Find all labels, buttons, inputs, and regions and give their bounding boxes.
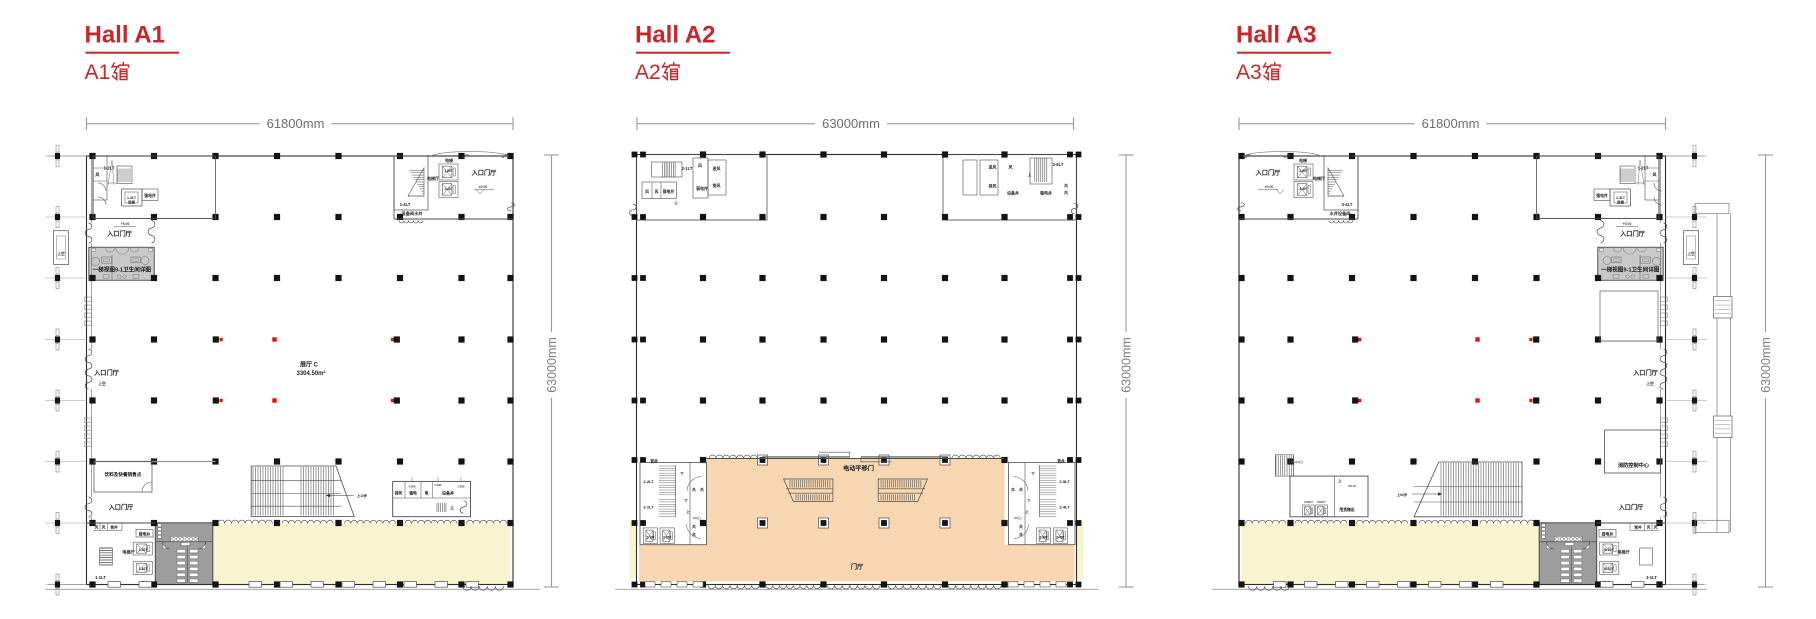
svg-text:货梯: 货梯 (127, 200, 135, 205)
svg-text:消防控制中心: 消防控制中心 (1618, 461, 1650, 469)
svg-text:3304.50m²: 3304.50m² (296, 370, 325, 377)
svg-text:设备井: 设备井 (442, 490, 454, 496)
svg-text:风: 风 (1064, 190, 1068, 195)
svg-text:上: 上 (674, 200, 678, 205)
svg-text:进风: 进风 (713, 165, 721, 171)
svg-text:上: 上 (450, 505, 454, 510)
svg-text:CDW: CDW (434, 483, 441, 487)
svg-text:X020Y: X020Y (1317, 500, 1326, 504)
svg-text:3-40T: 3-40T (1299, 187, 1307, 191)
svg-text:2-1LT: 2-1LT (643, 505, 654, 510)
svg-text:Hall A2: Hall A2 (635, 22, 715, 49)
svg-text:+5.00: +5.00 (1623, 222, 1632, 226)
svg-text:电梯: 电梯 (445, 157, 453, 163)
svg-text:2-1LT: 2-1LT (682, 166, 693, 171)
svg-text:1-10T: 1-10T (139, 567, 149, 571)
svg-text:B-10T: B-10T (1604, 567, 1614, 571)
svg-text:FM(乙): FM(乙) (1014, 516, 1022, 520)
svg-text:63000mm: 63000mm (822, 116, 880, 131)
svg-text:弱电井: 弱电井 (663, 189, 675, 194)
svg-text:货梯: 货梯 (1616, 200, 1625, 205)
svg-text:风: 风 (1064, 183, 1068, 188)
svg-text:展厅 C: 展厅 C (300, 361, 319, 369)
svg-text:风: 风 (102, 525, 106, 530)
svg-text:风: 风 (1647, 525, 1651, 530)
svg-text:上60步: 上60步 (1397, 492, 1408, 497)
svg-text:±0.00: ±0.00 (1265, 185, 1274, 189)
svg-text:1-3LT: 1-3LT (127, 196, 137, 200)
svg-text:管井: 管井 (1634, 525, 1642, 530)
svg-text:强电井: 强电井 (144, 193, 156, 198)
svg-text:电梯厅: 电梯厅 (1313, 175, 1325, 181)
svg-text:2-2LT: 2-2LT (643, 479, 654, 484)
svg-text:饮料及快餐销售点: 饮料及快餐销售点 (104, 471, 142, 478)
svg-text:上空: 上空 (98, 381, 106, 386)
svg-text:入口门厅: 入口门厅 (106, 230, 133, 238)
svg-text:±0.00: ±0.00 (479, 185, 488, 189)
svg-text:上空: 上空 (1687, 251, 1695, 256)
svg-text:上空: 上空 (1646, 381, 1654, 386)
svg-text:3-4LT: 3-4LT (1342, 202, 1353, 207)
svg-text:风: 风 (95, 525, 99, 530)
svg-text:61800mm: 61800mm (267, 116, 325, 131)
svg-text:风: 风 (1654, 525, 1658, 530)
svg-text:强电: 强电 (409, 491, 417, 496)
svg-text:电: 电 (425, 491, 429, 496)
svg-text:上15步: 上15步 (357, 493, 368, 498)
svg-text:A2: A2 (635, 61, 661, 84)
svg-text:A3: A3 (1236, 61, 1262, 84)
svg-text:1-50T: 1-50T (444, 169, 452, 173)
svg-text:入口门厅: 入口门厅 (1255, 169, 1282, 177)
svg-text:排风: 排风 (989, 183, 997, 189)
svg-text:强电井: 强电井 (1040, 190, 1052, 196)
svg-text:排风: 排风 (395, 491, 403, 496)
svg-text:63000mm: 63000mm (1119, 337, 1133, 393)
svg-text:入口门厅: 入口门厅 (93, 369, 120, 377)
svg-text:2-30T: 2-30T (1039, 536, 1047, 540)
svg-text:入口门厅: 入口门厅 (108, 504, 135, 512)
svg-text:风: 风 (645, 189, 649, 194)
svg-text:门厅: 门厅 (851, 563, 864, 571)
svg-text:1-20T: 1-20T (139, 548, 149, 552)
svg-text:GDM: GDM (409, 485, 417, 489)
svg-text:电动平移门: 电动平移门 (843, 465, 874, 473)
svg-text:63000mm: 63000mm (545, 337, 559, 393)
svg-text:管井: 管井 (1057, 459, 1065, 464)
svg-text:3-1LT: 3-1LT (1646, 575, 1657, 580)
svg-text:入口门厅: 入口门厅 (1619, 230, 1646, 238)
svg-text:1-1LT: 1-1LT (95, 575, 106, 580)
svg-text:风: 风 (698, 162, 702, 168)
svg-text:一梯视图9-1卫生间详图: 一梯视图9-1卫生间详图 (93, 266, 152, 274)
svg-text:弱电井: 弱电井 (1602, 531, 1614, 536)
svg-text:设备井: 设备井 (1007, 190, 1019, 196)
svg-text:GDM: GDM (458, 485, 466, 489)
svg-text:1-2LT: 1-2LT (104, 166, 115, 171)
svg-text:入口门厅: 入口门厅 (1618, 504, 1645, 512)
svg-text:+5.00: +5.00 (121, 222, 130, 226)
svg-text:设备间水井: 设备间水井 (402, 210, 424, 217)
svg-text:管井: 管井 (650, 459, 658, 464)
svg-text:弱电井: 弱电井 (696, 186, 708, 191)
svg-text:63000mm: 63000mm (1759, 337, 1773, 393)
svg-text:2-10T: 2-10T (646, 536, 654, 540)
svg-text:A1: A1 (85, 61, 111, 84)
svg-text:电梯厅: 电梯厅 (1617, 549, 1630, 556)
svg-text:HW(FM乙): HW(FM乙) (1291, 460, 1304, 464)
svg-text:1-40T: 1-40T (444, 187, 452, 191)
svg-text:弱电井: 弱电井 (139, 531, 151, 536)
svg-text:B-20T: B-20T (1604, 548, 1614, 552)
svg-text:进风: 进风 (989, 164, 997, 170)
svg-text:1-2LT: 1-2LT (1638, 166, 1649, 171)
svg-text:1-4LT: 1-4LT (400, 202, 411, 207)
svg-text:风: 风 (1009, 164, 1013, 170)
svg-text:2-20T: 2-20T (663, 536, 671, 540)
svg-text:电梯: 电梯 (1299, 157, 1307, 163)
svg-text:强电井: 强电井 (1596, 193, 1608, 198)
svg-text:甩货梯出: 甩货梯出 (1338, 507, 1354, 512)
svg-text:上: 上 (1028, 172, 1032, 177)
svg-text:入口门厅: 入口门厅 (1632, 369, 1659, 377)
svg-text:水井设备间: 水井设备间 (1330, 210, 1351, 217)
svg-text:Hall A3: Hall A3 (1236, 22, 1316, 49)
svg-text:61800mm: 61800mm (1422, 116, 1480, 131)
svg-text:管井: 管井 (110, 525, 118, 530)
svg-text:3-50T: 3-50T (1299, 169, 1307, 173)
svg-text:电梯厅: 电梯厅 (427, 175, 439, 181)
svg-text:X8.70: X8.70 (1348, 484, 1356, 488)
svg-text:风: 风 (655, 189, 659, 194)
svg-text:一梯视图9-1卫生间详图: 一梯视图9-1卫生间详图 (1601, 266, 1660, 274)
svg-text:2-5LT: 2-5LT (1059, 479, 1070, 484)
svg-text:Hall A1: Hall A1 (85, 22, 165, 49)
svg-text:X020T: X020T (1304, 500, 1313, 504)
svg-text:FM(乙): FM(乙) (693, 516, 701, 520)
svg-text:2-6LT: 2-6LT (1053, 162, 1064, 167)
svg-text:1-3LT: 1-3LT (1616, 196, 1626, 200)
svg-text:2-4LT: 2-4LT (1059, 505, 1070, 510)
svg-text:电梯厅: 电梯厅 (122, 549, 135, 556)
svg-text:排风: 排风 (713, 182, 721, 188)
svg-text:2-40T: 2-40T (1056, 536, 1064, 540)
svg-text:上空: 上空 (57, 251, 65, 256)
svg-text:入口门厅: 入口门厅 (471, 169, 498, 177)
